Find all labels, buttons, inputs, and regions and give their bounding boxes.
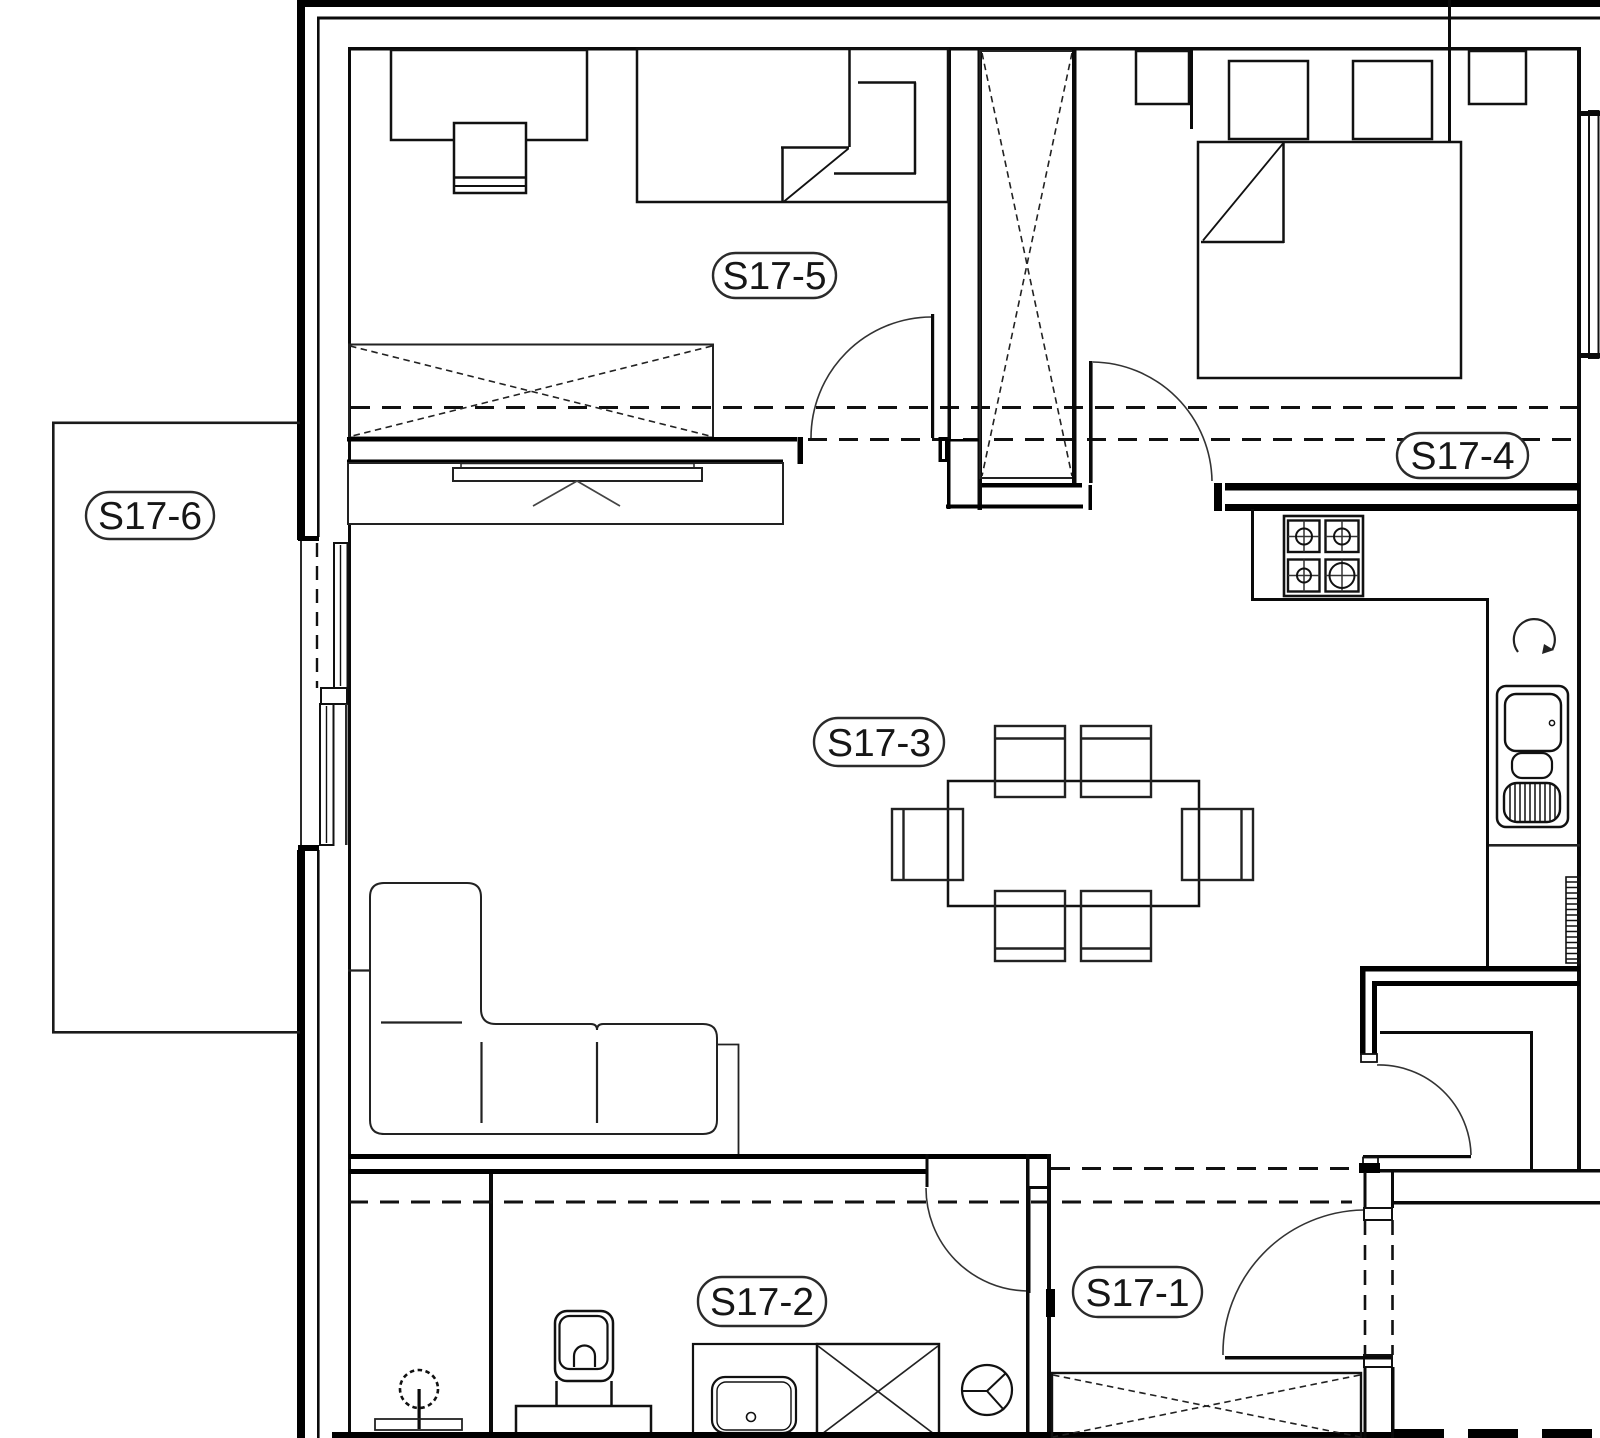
svg-text:S17-3: S17-3 <box>827 722 931 765</box>
svg-text:S17-5: S17-5 <box>722 255 826 298</box>
svg-text:S17-4: S17-4 <box>1410 435 1514 478</box>
svg-text:S17-6: S17-6 <box>98 495 202 538</box>
svg-text:S17-1: S17-1 <box>1085 1272 1189 1315</box>
svg-text:S17-2: S17-2 <box>710 1281 814 1324</box>
